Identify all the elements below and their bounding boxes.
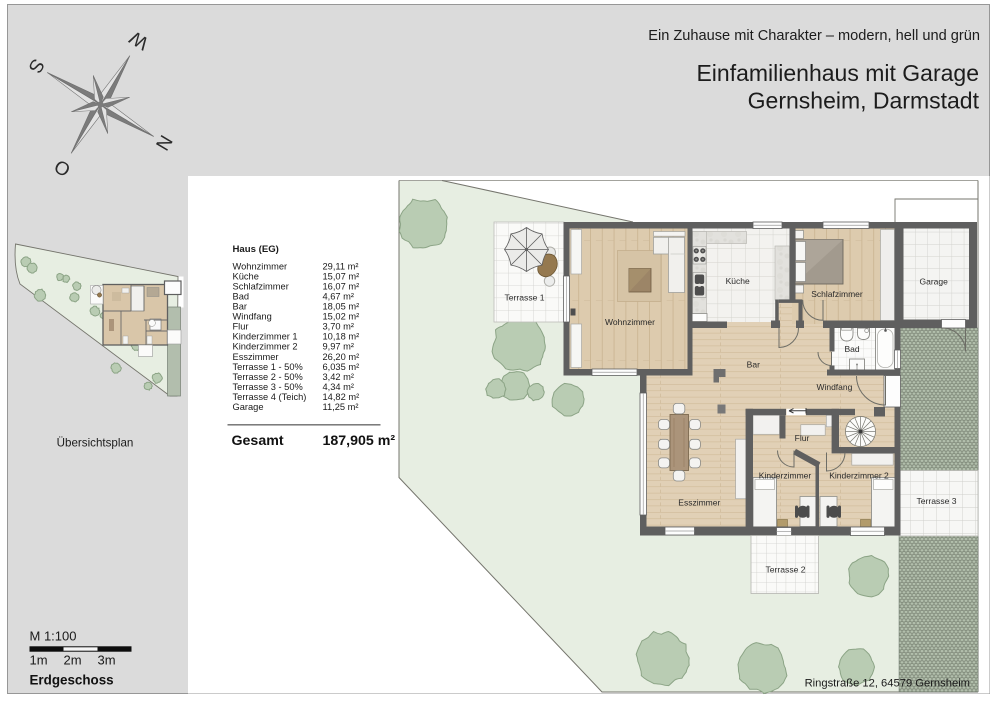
svg-text:Einfamilienhaus mit Garage: Einfamilienhaus mit Garage xyxy=(696,60,979,86)
svg-text:16,07 m²: 16,07 m² xyxy=(323,281,360,291)
svg-text:Wohnzimmer: Wohnzimmer xyxy=(605,317,655,327)
svg-text:Terrasse 2: Terrasse 2 xyxy=(765,565,805,575)
svg-text:29,11 m²: 29,11 m² xyxy=(323,261,359,271)
svg-text:10,18 m²: 10,18 m² xyxy=(323,332,360,342)
svg-text:Kinderzimmer 1: Kinderzimmer 1 xyxy=(233,332,298,342)
svg-text:Flur: Flur xyxy=(795,433,810,443)
svg-text:M 1:100: M 1:100 xyxy=(30,629,77,644)
svg-text:Terrasse 3 - 50%: Terrasse 3 - 50% xyxy=(233,382,303,392)
svg-text:Terrasse 4 (Teich): Terrasse 4 (Teich) xyxy=(233,392,307,402)
svg-text:Flur: Flur xyxy=(233,322,249,332)
svg-text:Bad: Bad xyxy=(844,344,859,354)
svg-text:Übersichtsplan: Übersichtsplan xyxy=(57,437,134,450)
svg-text:Erdgeschoss: Erdgeschoss xyxy=(30,673,114,688)
svg-text:Ein Zuhause mit Charakter – mo: Ein Zuhause mit Charakter – modern, hell… xyxy=(648,28,980,44)
svg-text:Haus (EG): Haus (EG) xyxy=(233,244,279,255)
svg-text:15,02 m²: 15,02 m² xyxy=(323,312,360,322)
svg-text:11,25 m²: 11,25 m² xyxy=(323,402,359,412)
svg-text:187,905 m²: 187,905 m² xyxy=(323,433,396,449)
svg-text:4,67 m²: 4,67 m² xyxy=(323,292,355,302)
svg-text:3m: 3m xyxy=(98,653,116,668)
svg-text:3,42 m²: 3,42 m² xyxy=(323,372,355,382)
svg-text:4,34 m²: 4,34 m² xyxy=(323,382,355,392)
svg-text:Terrasse 3: Terrasse 3 xyxy=(916,496,956,506)
svg-text:Terrasse 1: Terrasse 1 xyxy=(504,293,544,303)
svg-text:18,05 m²: 18,05 m² xyxy=(323,302,360,312)
svg-text:Küche: Küche xyxy=(726,276,750,286)
svg-text:1m: 1m xyxy=(30,653,48,668)
svg-text:Terrasse 2 - 50%: Terrasse 2 - 50% xyxy=(233,372,303,382)
svg-text:Schlafzimmer: Schlafzimmer xyxy=(233,281,289,291)
svg-text:Wohnzimmer: Wohnzimmer xyxy=(233,261,288,271)
svg-text:Windfang: Windfang xyxy=(233,312,272,322)
svg-text:Kinderzimmer 2: Kinderzimmer 2 xyxy=(829,471,889,481)
svg-text:Garage: Garage xyxy=(920,277,949,287)
svg-text:3,70 m²: 3,70 m² xyxy=(323,322,355,332)
svg-text:Esszimmer: Esszimmer xyxy=(233,352,279,362)
svg-text:Windfang: Windfang xyxy=(816,382,852,392)
svg-text:Terrasse 1 - 50%: Terrasse 1 - 50% xyxy=(233,362,303,372)
svg-text:Kinderzimmer: Kinderzimmer xyxy=(759,471,812,481)
svg-text:9,97 m²: 9,97 m² xyxy=(323,342,355,352)
svg-text:Bar: Bar xyxy=(747,360,760,370)
svg-text:Küche: Küche xyxy=(233,271,259,281)
svg-text:Bad: Bad xyxy=(233,292,250,302)
svg-text:Schlafzimmer: Schlafzimmer xyxy=(811,289,863,299)
svg-text:Kinderzimmer 2: Kinderzimmer 2 xyxy=(233,342,298,352)
svg-text:26,20 m²: 26,20 m² xyxy=(323,352,360,362)
svg-text:Garage: Garage xyxy=(233,402,264,412)
svg-text:15,07 m²: 15,07 m² xyxy=(323,271,360,281)
svg-text:Esszimmer: Esszimmer xyxy=(678,498,720,508)
svg-text:2m: 2m xyxy=(64,653,82,668)
svg-text:14,82 m²: 14,82 m² xyxy=(323,392,360,402)
svg-text:Gernsheim, Darmstadt: Gernsheim, Darmstadt xyxy=(748,88,980,114)
svg-text:6,035 m²: 6,035 m² xyxy=(323,362,360,372)
svg-text:Bar: Bar xyxy=(233,302,247,312)
svg-text:Gesamt: Gesamt xyxy=(232,433,284,449)
svg-text:Ringstraße 12, 64579 Gernsheim: Ringstraße 12, 64579 Gernsheim xyxy=(805,678,970,690)
